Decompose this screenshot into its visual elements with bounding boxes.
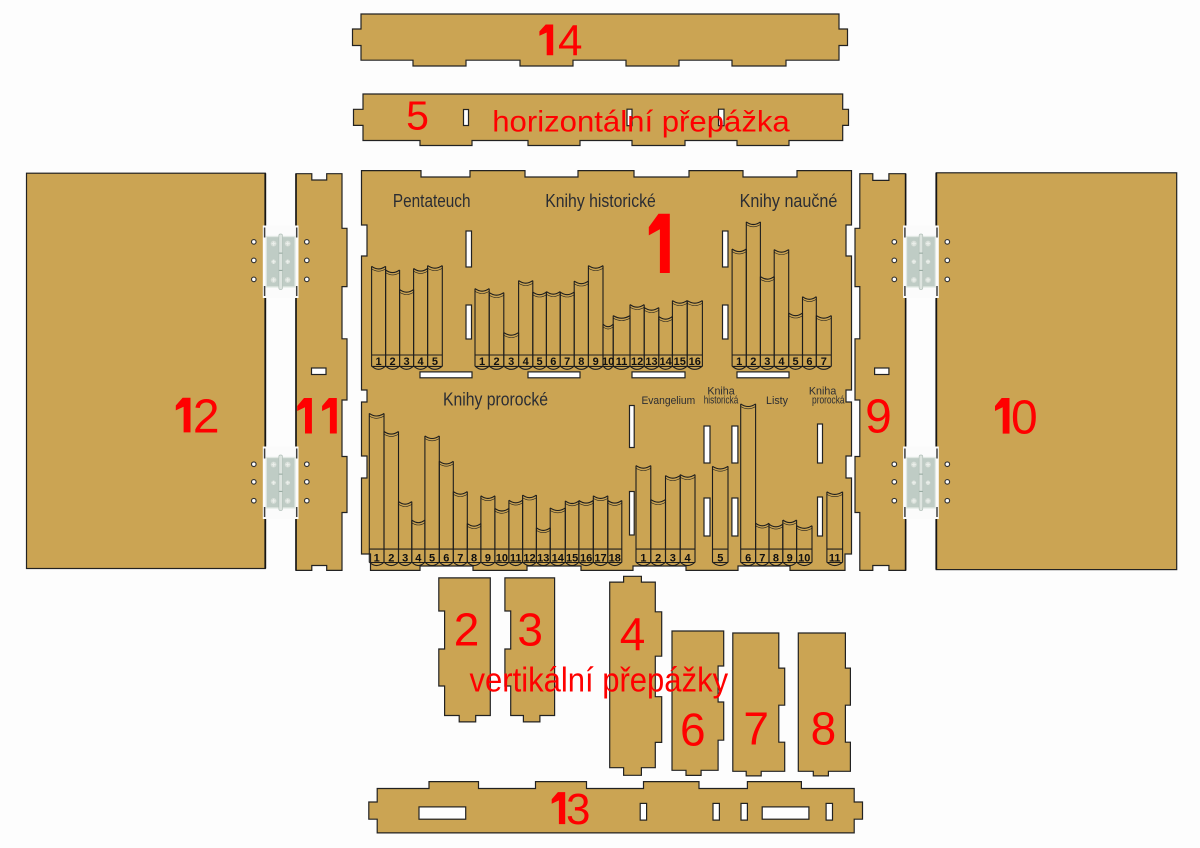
svg-text:prorocká: prorocká: [812, 395, 845, 407]
svg-text:2: 2: [388, 553, 394, 565]
svg-text:Pentateuch: Pentateuch: [393, 191, 471, 211]
svg-text:6: 6: [806, 356, 812, 368]
svg-text:13: 13: [645, 356, 657, 368]
svg-text:2: 2: [750, 356, 756, 368]
svg-text:2: 2: [193, 390, 220, 443]
svg-text:14: 14: [552, 553, 565, 565]
svg-text:1: 1: [376, 356, 382, 368]
svg-text:vertikální přepážky: vertikální přepážky: [470, 661, 729, 699]
svg-text:11: 11: [510, 553, 522, 565]
svg-text:5: 5: [432, 356, 438, 368]
svg-text:7: 7: [564, 356, 570, 368]
svg-text:4: 4: [685, 553, 692, 565]
svg-text:13: 13: [537, 553, 549, 565]
svg-text:7: 7: [457, 553, 463, 565]
svg-text:9: 9: [485, 553, 491, 565]
svg-text:16: 16: [689, 356, 701, 368]
svg-text:4: 4: [418, 356, 425, 368]
svg-text:17: 17: [594, 553, 606, 565]
svg-text:11: 11: [616, 356, 628, 368]
svg-text:4: 4: [415, 553, 422, 565]
svg-text:horizontální přepážka: horizontální přepážka: [492, 105, 790, 138]
svg-text:4: 4: [620, 608, 646, 660]
svg-text:3: 3: [508, 356, 514, 368]
svg-text:Evangelium: Evangelium: [641, 395, 695, 407]
svg-text:7: 7: [821, 356, 827, 368]
svg-text:12: 12: [631, 356, 643, 368]
svg-text:10: 10: [496, 553, 508, 565]
svg-text:1: 1: [374, 553, 380, 565]
svg-text:3: 3: [402, 553, 408, 565]
svg-text:3: 3: [517, 604, 543, 656]
svg-text:15: 15: [566, 553, 578, 565]
svg-text:5: 5: [406, 93, 429, 139]
svg-text:18: 18: [609, 553, 621, 565]
svg-text:8: 8: [773, 553, 779, 565]
svg-text:6: 6: [680, 704, 706, 756]
svg-text:3: 3: [566, 785, 590, 834]
svg-text:Knihy historické: Knihy historické: [545, 191, 656, 211]
svg-text:7: 7: [743, 703, 769, 755]
svg-text:4: 4: [558, 16, 582, 65]
svg-text:Knihy prorocké: Knihy prorocké: [443, 388, 548, 409]
svg-text:2: 2: [454, 604, 480, 656]
svg-text:1: 1: [640, 553, 646, 565]
svg-text:1: 1: [736, 356, 742, 368]
svg-text:3: 3: [404, 356, 410, 368]
svg-text:15: 15: [674, 356, 686, 368]
svg-text:8: 8: [578, 356, 584, 368]
svg-text:16: 16: [580, 553, 592, 565]
svg-text:8: 8: [811, 703, 837, 755]
svg-text:6: 6: [443, 553, 449, 565]
svg-text:2: 2: [390, 356, 396, 368]
svg-text:9: 9: [865, 390, 892, 443]
svg-text:3: 3: [764, 356, 770, 368]
svg-text:11: 11: [829, 553, 841, 565]
svg-text:14: 14: [659, 356, 672, 368]
svg-text:5: 5: [537, 356, 543, 368]
svg-text:2: 2: [493, 356, 499, 368]
svg-text:1: 1: [479, 356, 485, 368]
svg-text:8: 8: [471, 553, 477, 565]
svg-text:12: 12: [523, 553, 535, 565]
svg-text:4: 4: [778, 356, 785, 368]
svg-text:historická: historická: [704, 395, 739, 407]
svg-text:Listy: Listy: [766, 395, 789, 407]
svg-text:9: 9: [787, 553, 793, 565]
svg-text:10: 10: [602, 356, 614, 368]
svg-text:10: 10: [798, 553, 810, 565]
svg-text:4: 4: [523, 356, 530, 368]
svg-text:6: 6: [550, 356, 556, 368]
svg-text:3: 3: [670, 553, 676, 565]
svg-text:Knihy naučné: Knihy naučné: [740, 191, 838, 211]
svg-text:7: 7: [759, 553, 765, 565]
svg-text:6: 6: [745, 553, 751, 565]
svg-text:5: 5: [429, 553, 435, 565]
svg-text:5: 5: [717, 553, 723, 565]
svg-text:9: 9: [593, 356, 599, 368]
svg-text:5: 5: [793, 356, 799, 368]
svg-text:0: 0: [1011, 392, 1038, 445]
svg-text:2: 2: [655, 553, 661, 565]
